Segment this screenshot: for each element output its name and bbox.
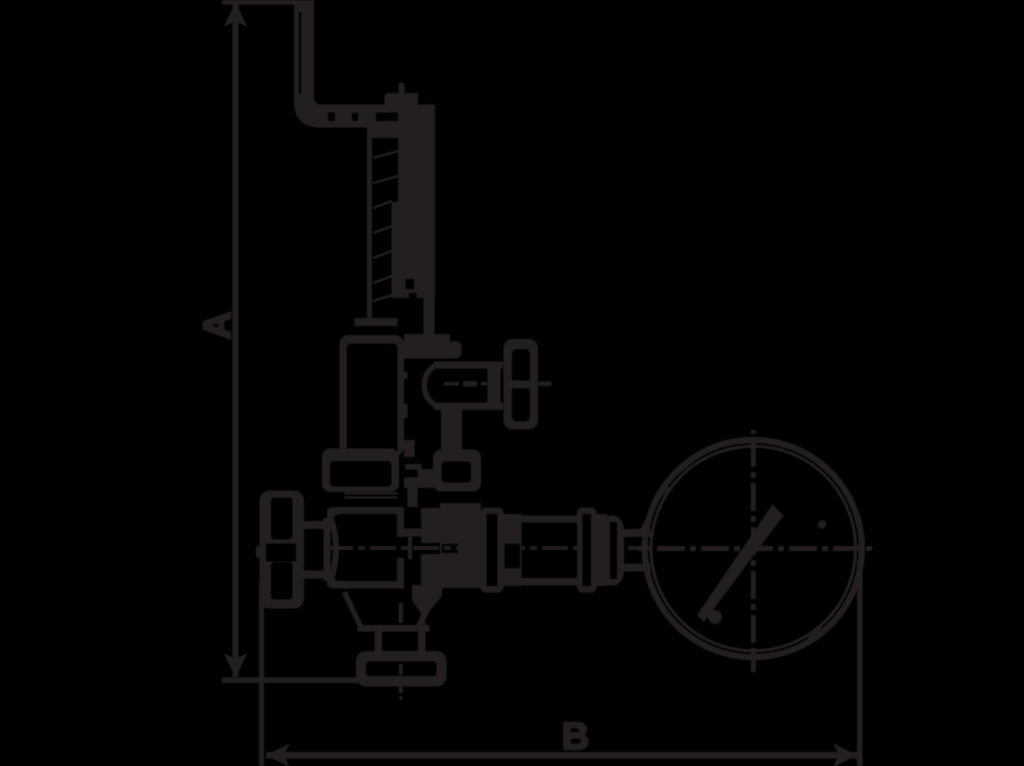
svg-text:B: B	[562, 716, 589, 758]
svg-text:A: A	[197, 312, 239, 339]
